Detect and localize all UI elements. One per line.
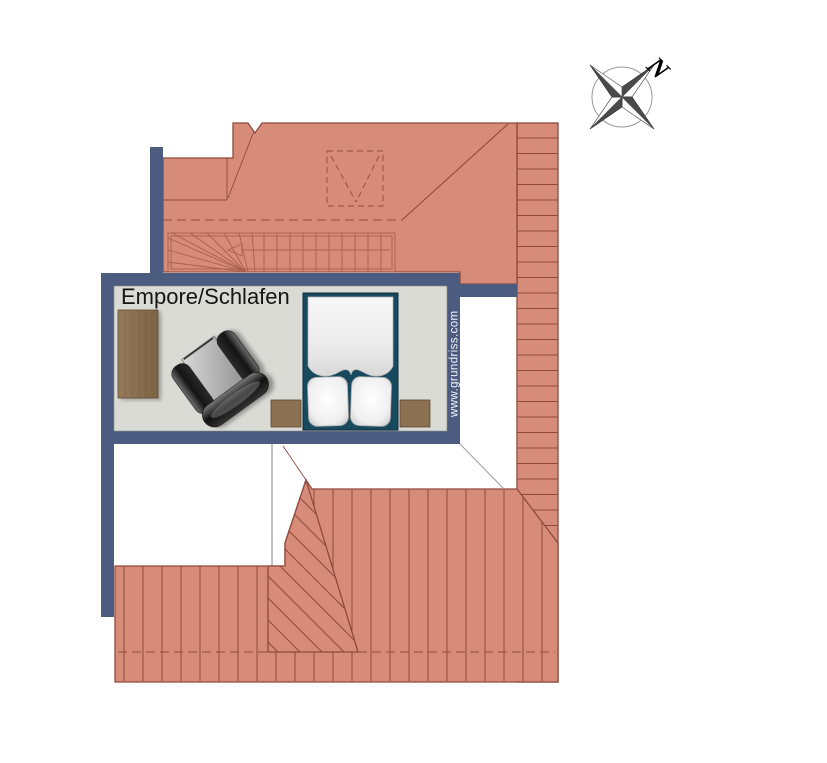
wardrobe xyxy=(118,310,158,398)
duvet xyxy=(308,297,393,376)
compass-north-label: N xyxy=(640,50,675,85)
nightstand-right xyxy=(400,400,430,427)
roof-top xyxy=(163,123,517,284)
pillow-left xyxy=(307,376,349,426)
wall-upper-left xyxy=(150,147,163,273)
nightstand-left xyxy=(271,400,301,427)
pillow-right xyxy=(350,376,392,426)
double-bed xyxy=(303,293,398,430)
room-label: Empore/Schlafen xyxy=(121,284,290,309)
floor-plan-page: Empore/Schlafen www.grundriss.com N xyxy=(0,0,827,763)
room-empore-schlafen: Empore/Schlafen www.grundriss.com xyxy=(114,284,461,432)
wall-lower-left xyxy=(101,444,114,617)
watermark-text: www.grundriss.com xyxy=(449,311,461,419)
roof-bottom xyxy=(96,470,558,682)
compass-rose-icon: N xyxy=(590,50,676,129)
floor-plan-svg: Empore/Schlafen www.grundriss.com N xyxy=(0,0,827,763)
wall-right-bar xyxy=(460,284,517,297)
